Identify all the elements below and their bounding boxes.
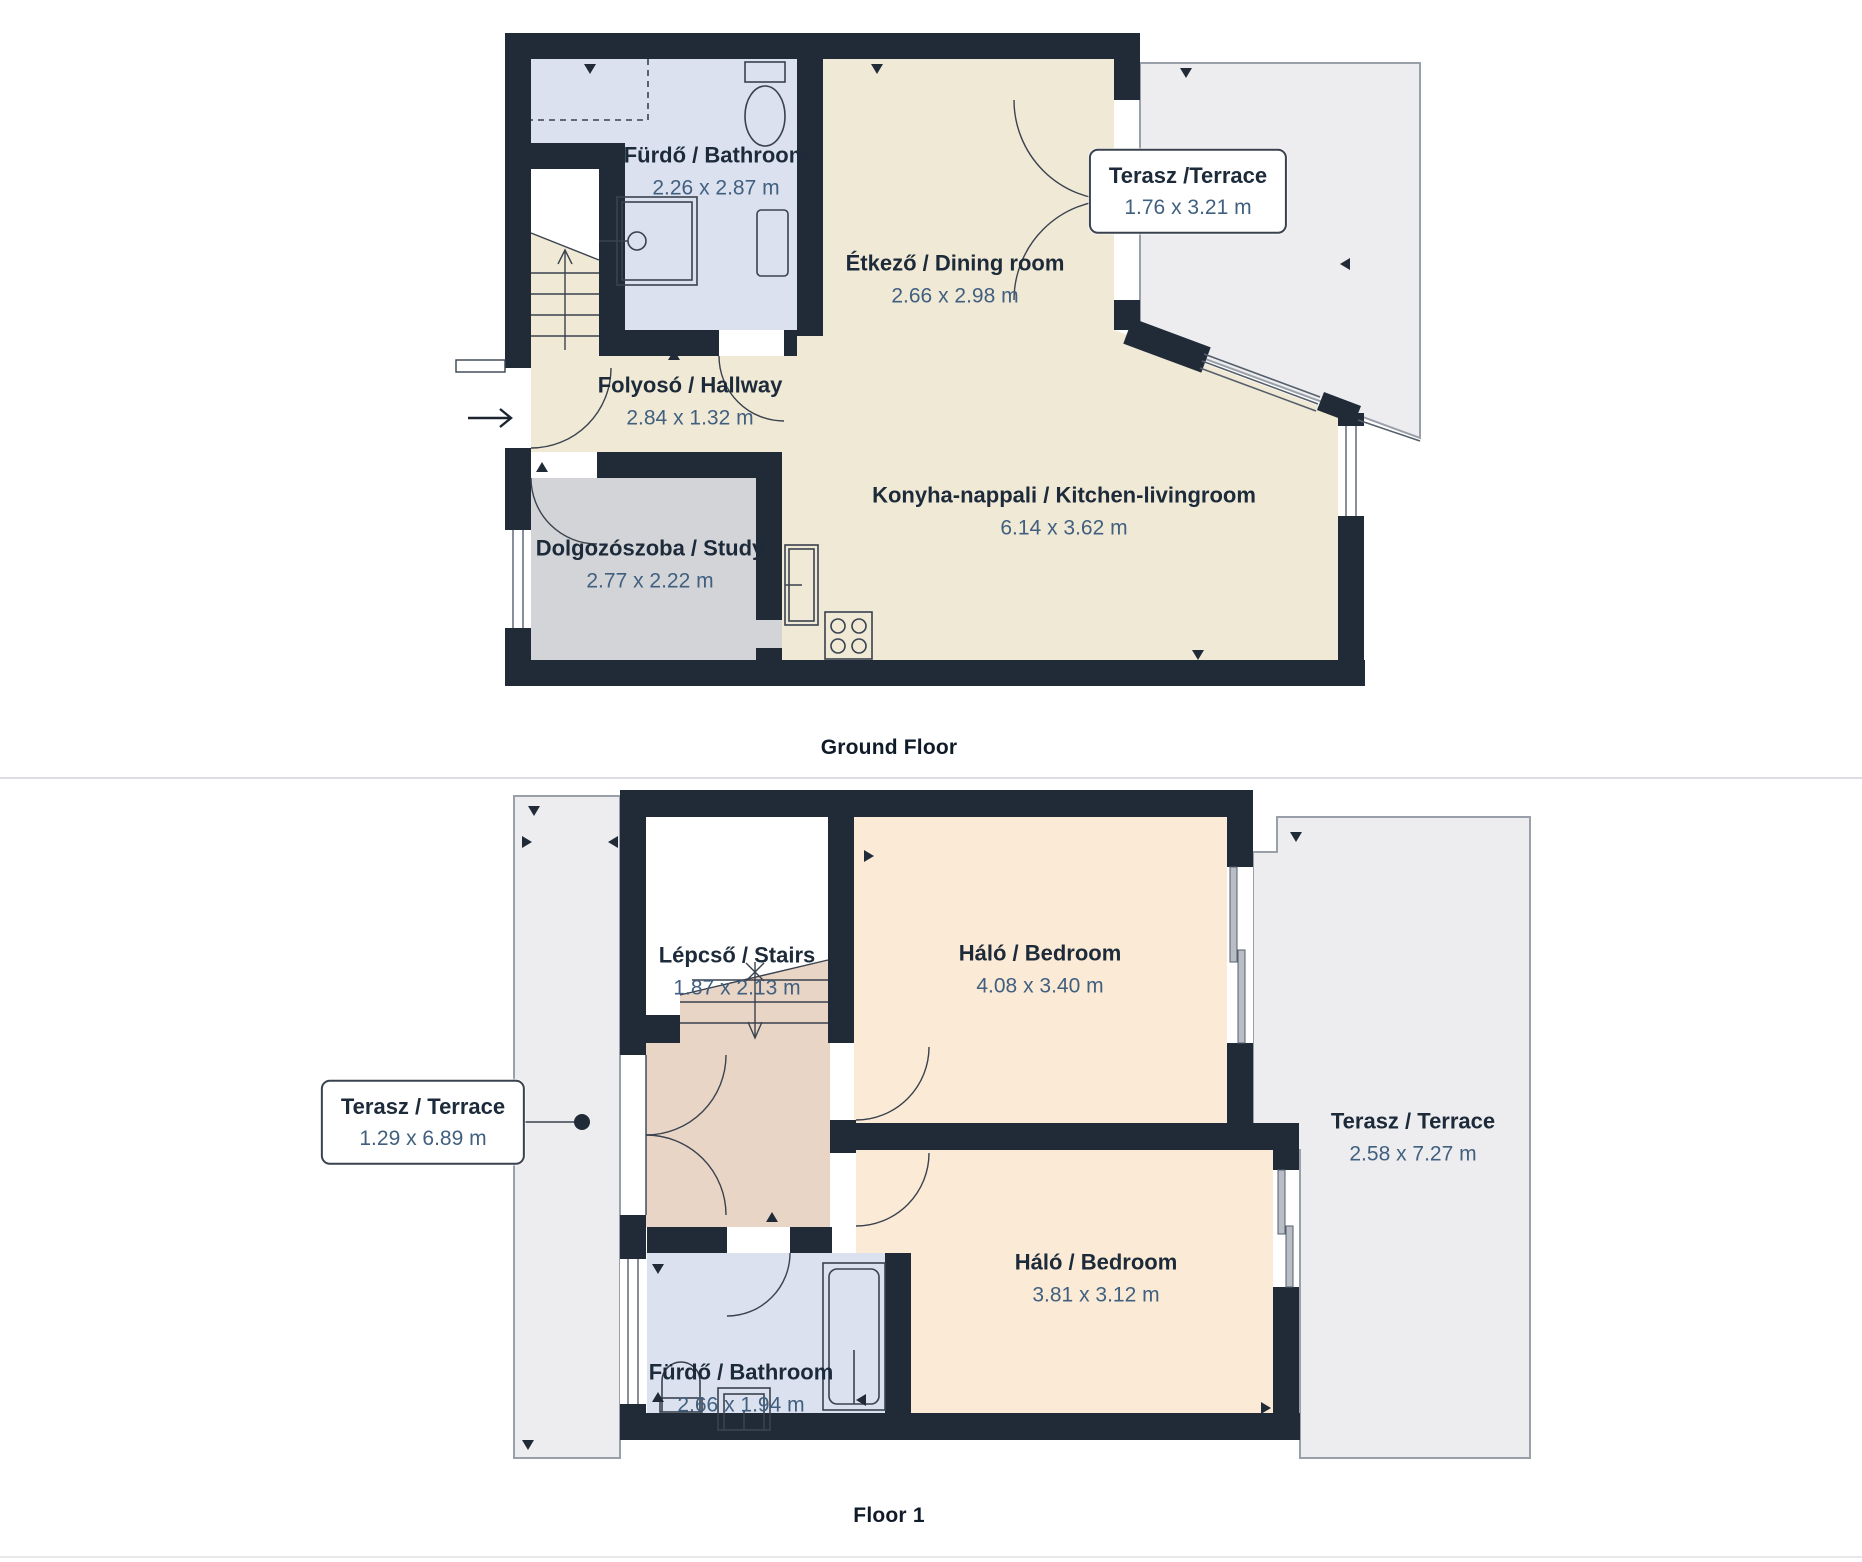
f1-bedroom-bottom-window — [1273, 1170, 1299, 1287]
ground-floor-plan — [440, 28, 1430, 728]
room-label-f1-terrace-left: Terasz / Terrace 1.29 x 6.89 m — [321, 1080, 525, 1165]
f1-terrace-left-floor — [514, 796, 620, 1458]
f1-hallway-floor — [646, 1043, 830, 1227]
ground-floor-caption: Ground Floor — [821, 736, 958, 760]
room-dims: 1.76 x 3.21 m — [1109, 192, 1267, 224]
f1-bedroom-top-floor — [854, 817, 1227, 1123]
entry-arrow-icon — [468, 409, 511, 427]
section-divider — [0, 777, 1862, 779]
room-label-gf-terrace: Terasz /Terrace 1.76 x 3.21 m — [1089, 149, 1287, 234]
floor-1-caption: Floor 1 — [853, 1504, 924, 1528]
gf-right-window — [1338, 426, 1364, 516]
floorplan-page: Fürdő / Bathroom 2.26 x 2.87 m Terasz /T… — [0, 0, 1862, 1562]
f1-bathroom-window — [620, 1252, 646, 1411]
room-name: Terasz / Terrace — [341, 1090, 505, 1123]
f1-bathroom-floor — [647, 1253, 885, 1413]
gf-left-window — [505, 530, 531, 628]
bottom-divider — [0, 1556, 1862, 1558]
f1-bedroom-top-window — [1227, 867, 1253, 1043]
gf-study-floor — [531, 478, 756, 660]
room-name: Terasz /Terrace — [1109, 159, 1267, 192]
gf-study-wall-notch — [756, 620, 782, 648]
room-dims: 1.29 x 6.89 m — [341, 1123, 505, 1155]
f1-bedroom-bottom-floor — [856, 1150, 1273, 1413]
